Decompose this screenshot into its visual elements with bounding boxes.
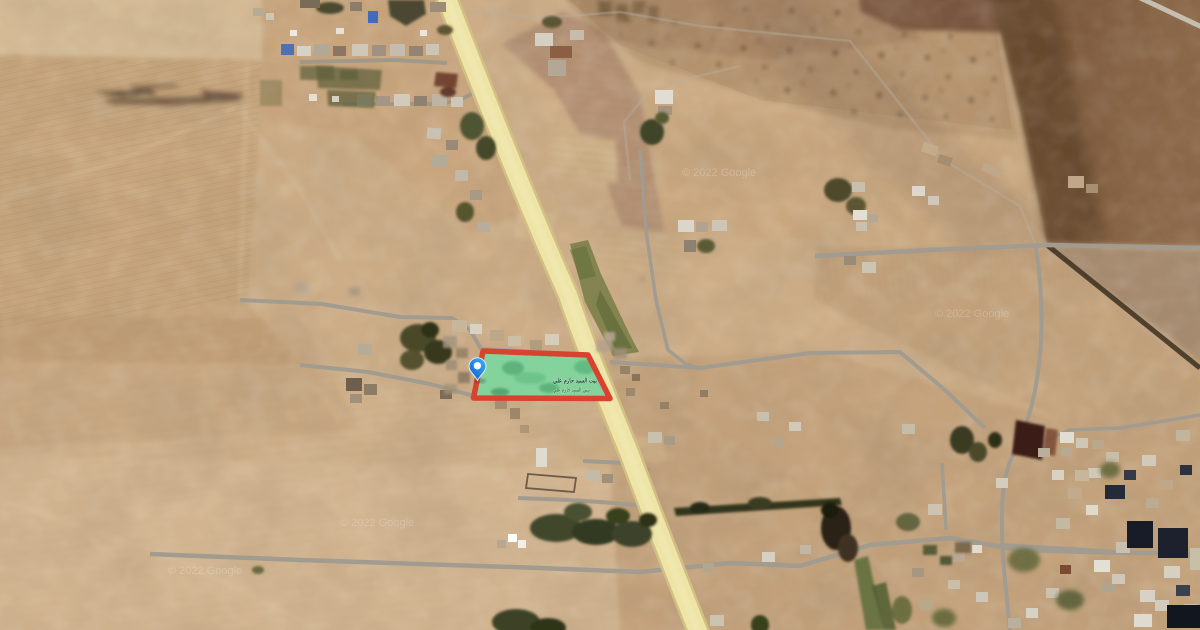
svg-text:© 2022 Google: © 2022 Google [168, 565, 242, 577]
svg-text:بيتي السيد حازم علي: بيتي السيد حازم علي [553, 387, 590, 394]
svg-text:© 2022 Google: © 2022 Google [340, 517, 414, 529]
svg-text:© 2022 Google: © 2022 Google [682, 167, 756, 179]
svg-text:© 2022 Google: © 2022 Google [935, 308, 1009, 320]
svg-text:بيت السيد حازم علي: بيت السيد حازم علي [553, 377, 597, 386]
